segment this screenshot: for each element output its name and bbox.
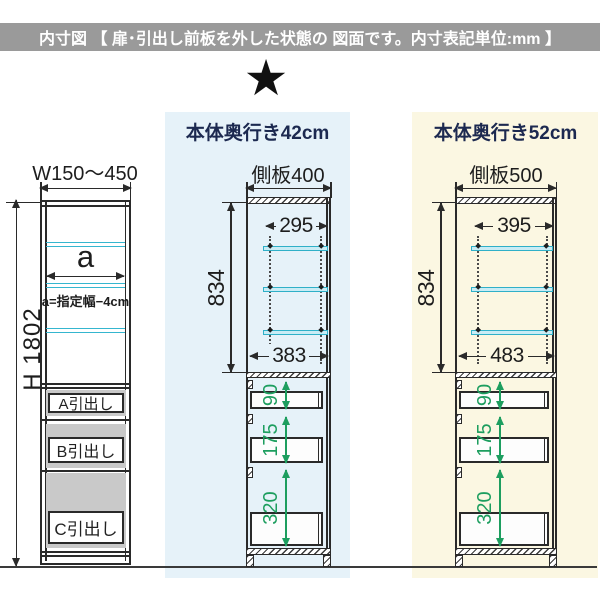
sv42-bottom-panel: [246, 548, 331, 555]
sv42-834-label: 834: [204, 253, 228, 323]
sv52-rail-3: [456, 467, 462, 478]
sv52-320-dim: [496, 469, 505, 547]
sv52-90-dim: [496, 381, 505, 410]
sv42-depth-dim-arrow: [245, 184, 332, 193]
sv42-top-panel: [246, 197, 331, 204]
sv52-483-label: 483: [486, 344, 528, 367]
sv52-depth-dim-arrow: [454, 184, 557, 193]
front-width-dim-arrow: [39, 184, 132, 193]
front-a-dim-arrow: [46, 272, 125, 281]
sv52-foot-left: [455, 555, 463, 567]
sv52-175-label: 175: [475, 415, 495, 465]
front-width-label: W150〜450: [26, 160, 144, 182]
star-icon: ★: [238, 53, 294, 103]
sv42-175-label: 175: [261, 415, 281, 465]
sv52-fixed-shelf: [455, 372, 557, 378]
sv52-foot-right: [549, 555, 557, 567]
front-drawer-b-label: B引出し: [57, 438, 116, 462]
sv42-rail-2: [247, 414, 253, 424]
front-drawer-b: B引出し: [48, 437, 124, 463]
sv52-rail-2: [456, 414, 462, 424]
sv52-panel-label: 側板500: [456, 162, 556, 184]
sv42-shelf-1: [263, 246, 328, 251]
sv52-shelf-2: [471, 287, 553, 292]
sv52-shelf-3: [471, 330, 553, 335]
sv42-rail-3: [247, 467, 253, 478]
sv42-pinline-right: [320, 236, 322, 364]
front-base-line-1: [42, 551, 129, 553]
diagram-canvas: 内寸図 【 扉･引出し前板を外した状態の 図面です。内寸表記単位:mm 】 ★ …: [0, 0, 600, 600]
sv42-rail-1: [247, 380, 253, 389]
front-base-line-2: [42, 555, 129, 557]
sv52-pinline-right: [546, 236, 548, 364]
front-divider-2: [42, 387, 129, 389]
depth52-label: 本体奥行き52cm: [418, 119, 593, 143]
front-shelf-line-3: [46, 328, 125, 333]
sv42-shelf-3: [263, 330, 328, 335]
sv42-175-dim: [282, 416, 291, 464]
sv42-320-label: 320: [261, 483, 281, 533]
sv42-panel-label: 側板400: [240, 162, 336, 184]
ground-line: [0, 566, 597, 568]
sv52-witness-left: [455, 182, 457, 198]
front-divider-4: [42, 470, 129, 472]
sv42-shelf-2: [263, 287, 328, 292]
sv52-rail-1: [456, 380, 462, 389]
front-drawer-a-label: A引出し: [58, 393, 113, 414]
sv52-shelf-1: [471, 246, 553, 251]
depth42-label: 本体奥行き42cm: [170, 119, 345, 143]
header-title: 内寸図 【 扉･引出し前板を外した状態の 図面です。内寸表記単位:mm 】: [0, 23, 600, 51]
sv42-90-label: 90: [261, 377, 281, 413]
sv42-320-dim: [282, 469, 291, 547]
sv42-90-dim: [282, 381, 291, 410]
sv52-witness-right: [556, 182, 558, 198]
front-a-note: a=指定幅−4cm: [43, 292, 128, 309]
front-inner-top: [42, 205, 129, 207]
sv42-295-label: 295: [276, 214, 316, 237]
sv52-320-label: 320: [475, 483, 495, 533]
sv42-fixed-shelf: [246, 372, 331, 378]
front-shelf-line-2: [46, 283, 125, 288]
sv52-834-label: 834: [414, 253, 438, 323]
sv42-witness-right: [330, 182, 332, 198]
front-divider-3: [42, 419, 129, 421]
height-label: H 1802: [19, 289, 47, 409]
sv52-90-label: 90: [475, 377, 495, 413]
sv42-foot-right: [323, 555, 331, 567]
front-divider-1: [42, 383, 129, 385]
front-drawer-a: A引出し: [48, 393, 124, 413]
front-witness-right: [130, 182, 132, 200]
sv52-pinline-left: [477, 236, 479, 364]
sv42-witness-left: [246, 182, 248, 198]
front-drawer-c-label: C引出し: [54, 515, 117, 540]
front-drawer-c: C引出し: [48, 511, 124, 544]
sv52-bottom-panel: [455, 548, 557, 555]
sv52-395-label: 395: [493, 214, 535, 237]
sv52-top-panel: [455, 197, 557, 204]
front-a-label: a: [46, 240, 125, 274]
sv52-175-dim: [496, 416, 505, 464]
sv42-foot-left: [246, 555, 254, 567]
front-witness-left: [40, 182, 42, 200]
sv42-383-label: 383: [269, 344, 309, 367]
